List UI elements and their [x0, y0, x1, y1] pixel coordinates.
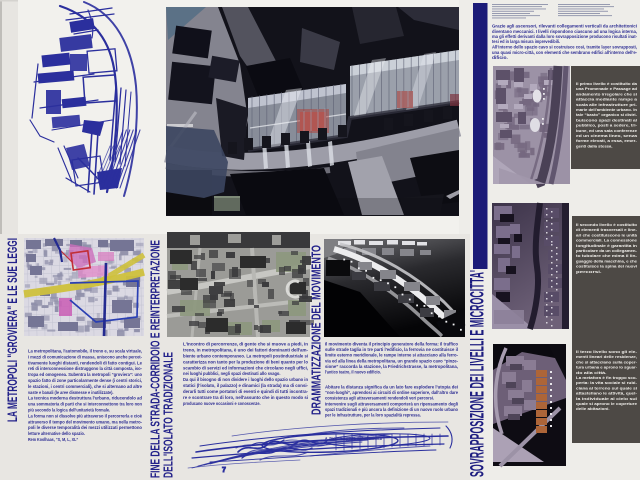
- svg-text:consistenza agli attraversamen: consistenza agli attraversamenti rendend…: [325, 396, 434, 401]
- svg-text:tivamente luoghi distanti, ren: tivamente luoghi distanti, rendendoli di…: [28, 360, 143, 365]
- svg-text:LA METROPOLI "GROVIERA" E LE S: LA METROPOLI "GROVIERA" E LE SUE LEGGI: [5, 238, 20, 422]
- svg-text:La forma non si dissolve più a: La forma non si dissolve più attraverso …: [28, 413, 143, 418]
- svg-text:spazi tradizionali e più ancor: spazi tradizionali e più ancora la defin…: [325, 407, 458, 412]
- svg-text:SOVRAPPOSIZIONE DEI LIVELLI E: SOVRAPPOSIZIONE DEI LIVELLI E MICROCITTA…: [468, 270, 489, 477]
- svg-text:biente urbano contemporaneo. L: biente urbano contemporaneo. La metropol…: [183, 353, 308, 358]
- svg-text:limite esterno meridionale, le: limite esterno meridionale, le rampe int…: [325, 353, 459, 358]
- svg-text:delle abitazioni.: delle abitazioni.: [576, 406, 610, 411]
- svg-text:“non-luoghi”, aprendosi ai cir: “non-luoghi”, aprendosi ai circuiti di o…: [325, 390, 459, 395]
- svg-text:poli le diverse temporalità de: poli le diverse temporalità dei mezzi ut…: [28, 425, 142, 430]
- svg-text:dificio.: dificio.: [492, 55, 508, 60]
- svg-text:Da qui il bisogno di non divid: Da qui il bisogno di non dividere i luog…: [183, 377, 308, 382]
- svg-text:spazio fatto di zone particola: spazio fatto di zone particolarmente den…: [28, 378, 142, 383]
- svg-text:re e scontrare tra di loro, ne: re e scontrare tra di loro, nell'assunto…: [183, 395, 308, 400]
- svg-text:caratterizza non tanto per la: caratterizza non tanto per la produzione…: [183, 359, 308, 364]
- svg-text:Il movimento diventa il princi: Il movimento diventa il principio genera…: [325, 342, 458, 347]
- svg-text:nei luoghi pubblici, negli spa: nei luoghi pubblici, negli spazi destina…: [183, 371, 281, 376]
- svg-text:letture alternative dello spaz: letture alternative dello spazio.: [28, 431, 85, 436]
- svg-text:genti dalla stessa.: genti dalla stessa.: [576, 143, 613, 148]
- svg-text:7: 7: [222, 467, 226, 474]
- svg-text:scambio di servizi ed informaz: scambio di servizi ed informazioni che c…: [183, 365, 308, 370]
- svg-text:Rem Koolhaas, “S, M, L, XL”: Rem Koolhaas, “S, M, L, XL”: [28, 437, 78, 442]
- svg-text:Grazie agli ascensori, rilevan: Grazie agli ascensori, rilevanti collega…: [492, 24, 637, 29]
- svg-text:vaste e banali (le aree dismes: vaste e banali (le aree dismesse e inuti…: [28, 390, 114, 395]
- svg-text:sulle strade taglia in tre par: sulle strade taglia in tre parti l'edifi…: [325, 347, 458, 352]
- svg-text:treno, in metropolitana, è uno: treno, in metropolitana, è uno dei fatto…: [183, 347, 309, 352]
- svg-text:tropa ed omogenea. Subentra la: tropa ed omogenea. Subentra la metropoli…: [28, 372, 142, 377]
- svg-text:via ed alla linea della metrop: via ed alla linea della metropolitana, u…: [325, 358, 459, 363]
- svg-text:DELL'ISOLATO TRADIZIONALE: DELL'ISOLATO TRADIZIONALE: [161, 352, 176, 478]
- svg-text:per le infrastrutture, per la: per le infrastrutture, per la loro spazi…: [325, 413, 421, 418]
- svg-text:Abitare la distanza significa: Abitare la distanza significa da un lato…: [325, 385, 458, 390]
- svg-text:percorsi.: percorsi.: [576, 269, 602, 274]
- svg-text:La tecnica moderna destruttura: La tecnica moderna destruttura l'urbano,…: [28, 396, 142, 401]
- svg-text:l'antico teatro, il nuovo edif: l'antico teatro, il nuovo edificio.: [325, 370, 381, 375]
- svg-text:All'interno dello spazio cavo: All'interno dello spazio cavo si costrui…: [492, 45, 637, 50]
- svg-text:tesi ed in larga misura imprev: tesi ed in larga misura imprevedibili.: [492, 39, 560, 44]
- svg-text:le stazioni, i centri commerci: le stazioni, i centri commerciali), che …: [28, 384, 143, 389]
- svg-text:reti di interconnessione distr: reti di interconnessione distruggono la …: [28, 366, 142, 371]
- svg-text:DRAMMATIZZAZIONE DEL MOVIMENTO: DRAMMATIZZAZIONE DEL MOVIMENTO: [310, 245, 324, 415]
- svg-text:una sommatoria di parti che si: una sommatoria di parti che si interconn…: [28, 402, 142, 407]
- svg-text:i mezzi di comunicazione di ma: i mezzi di comunicazione di massa, unisc…: [28, 354, 142, 359]
- svg-text:L'incontro di percorrenze, di: L'incontro di percorrenze, di gente che …: [183, 342, 308, 347]
- svg-text:attraverso il tempo del movime: attraverso il tempo del movimento umano,…: [28, 419, 142, 424]
- svg-text:sione” raccorda la stazione, l: sione” raccorda la stazione, la Friedric…: [325, 364, 458, 369]
- svg-text:producano nuove occasioni e co: producano nuove occasioni e conoscenze.: [183, 401, 261, 406]
- svg-text:A. Paola “La paura dell'urbani: A. Paola “La paura dell'urbanistica”: [325, 436, 384, 441]
- svg-text:una quasi micro-città, con ele: una quasi micro-città, con elementi che …: [492, 50, 637, 55]
- svg-text:Intervenire sugli attraversame: Intervenire sugli attraversamenti compor…: [325, 401, 458, 406]
- svg-text:La metropolitana, l'automobile: La metropolitana, l'automobile, il treno…: [28, 349, 142, 354]
- svg-text:statici (l'isolato, il palazzo: statici (l'isolato, il palazzo) e dinami…: [183, 383, 309, 388]
- svg-text:più secondo la logica dell'uni: più secondo la logica dell'unitarietà fo…: [28, 408, 110, 413]
- svg-text:derarli tutti come portatori d: derarli tutti come portatori di eventi e…: [183, 389, 309, 394]
